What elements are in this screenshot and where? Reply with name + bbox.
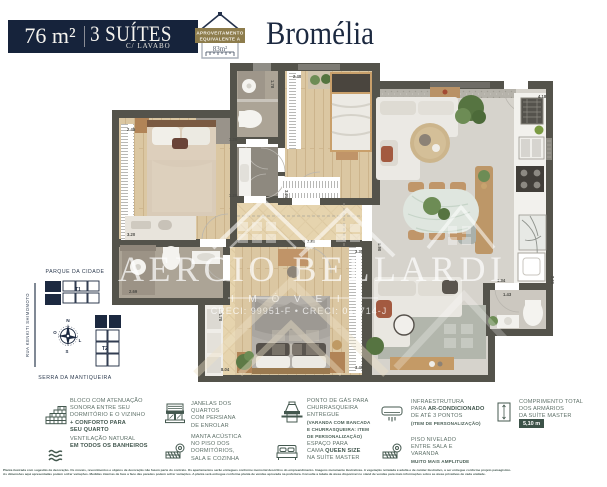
svg-text:N: N: [66, 318, 70, 324]
svg-text:3.40: 3.40: [355, 365, 364, 370]
svg-text:LAERCIO BELLARDI: LAERCIO BELLARDI: [92, 249, 507, 289]
svg-text:O: O: [53, 330, 57, 335]
svg-text:2.45: 2.45: [127, 127, 136, 132]
svg-text:PARQUE DA CIDADE: PARQUE DA CIDADE: [46, 269, 105, 275]
svg-text:L: L: [79, 338, 82, 343]
svg-text:T1: T1: [75, 287, 81, 293]
svg-text:T2: T2: [102, 346, 108, 352]
svg-text:2.40: 2.40: [293, 74, 302, 79]
svg-text:2.69: 2.69: [129, 289, 138, 294]
svg-text:1.20: 1.20: [229, 193, 238, 198]
svg-text:3.21: 3.21: [284, 190, 289, 199]
svg-text:SERRA DA MANTIQUEIRA: SERRA DA MANTIQUEIRA: [38, 375, 111, 381]
svg-text:8.04: 8.04: [221, 367, 230, 372]
svg-text:S: S: [66, 349, 69, 354]
svg-text:RUA KENKITI SHIMOMOTO: RUA KENKITI SHIMOMOTO: [25, 293, 30, 357]
svg-text:1.20: 1.20: [229, 137, 238, 142]
svg-text:1.43: 1.43: [503, 292, 512, 297]
svg-text:1.78: 1.78: [270, 80, 275, 89]
svg-text:CRECI: 99951-F • CRECI: 011714: CRECI: 99951-F • CRECI: 011714-J: [211, 306, 388, 316]
svg-text:3.20: 3.20: [127, 232, 136, 237]
svg-text:4.18: 4.18: [538, 94, 547, 99]
svg-text:2.66: 2.66: [550, 276, 555, 285]
